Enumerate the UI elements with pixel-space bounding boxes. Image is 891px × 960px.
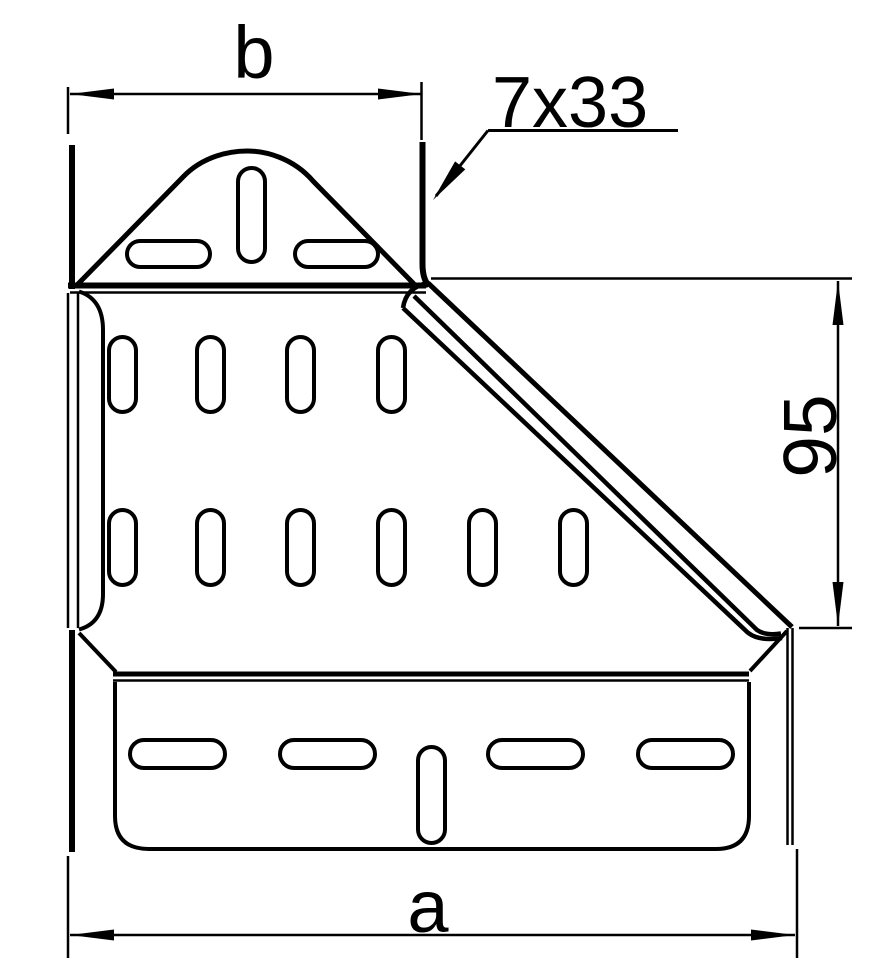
technical-drawing: b 7x33 95 a [0, 0, 891, 960]
diagonal-edge [403, 283, 792, 639]
left-rail [68, 292, 103, 630]
dimension-a: a [68, 849, 797, 958]
right-wall-edge [423, 142, 430, 286]
drawing-canvas: b 7x33 95 a [0, 0, 891, 960]
slot-hole [197, 337, 224, 412]
top-flange [77, 151, 414, 285]
slot-hole [197, 510, 224, 585]
arrowhead [751, 930, 795, 941]
dim-label-95: 95 [768, 394, 852, 477]
slot-hole [638, 740, 733, 768]
arrowhead [70, 930, 114, 941]
arrowhead [833, 281, 844, 325]
arrowhead [70, 89, 114, 100]
slot-hole [418, 747, 445, 843]
upper-side-walls [72, 142, 429, 289]
dim-label-a: a [407, 865, 449, 948]
slot-hole [287, 510, 314, 585]
bottom-flange [113, 674, 749, 849]
slot-hole [295, 241, 378, 267]
slot-hole [130, 740, 225, 768]
slot-hole [127, 241, 210, 267]
slot-hole [378, 337, 405, 412]
flange-outline [115, 682, 749, 849]
slot-hole [469, 510, 496, 585]
arrowhead [433, 161, 465, 200]
diagonal-outer-line [428, 283, 792, 627]
slot-hole [280, 740, 375, 768]
slot-hole [238, 168, 265, 262]
web-slots-row-1 [109, 337, 405, 412]
rail-rolled-edge [79, 292, 103, 630]
body-top-edge [68, 286, 426, 293]
web-slots-row-2 [109, 510, 587, 585]
arrowhead [833, 582, 844, 626]
slot-hole [560, 510, 587, 585]
slot-hole [378, 510, 405, 585]
diagonal-rolled-edge [403, 308, 782, 639]
dim-label-b: b [233, 11, 274, 94]
slot-hole [109, 337, 136, 412]
diagonal-inner-line [414, 296, 781, 634]
leader-7x33: 7x33 [433, 63, 678, 200]
slot-hole [488, 740, 583, 768]
arrowhead [378, 89, 422, 100]
dimension-b: b [68, 11, 422, 140]
slot-hole [287, 337, 314, 412]
left-corner-fold [79, 633, 116, 672]
slot-hole [109, 510, 136, 585]
